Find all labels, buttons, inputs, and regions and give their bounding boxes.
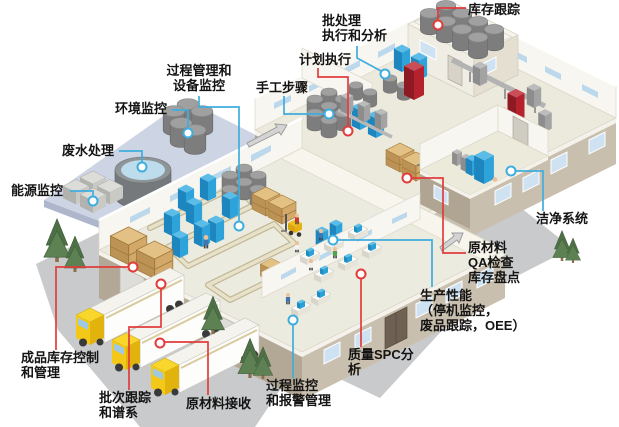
callout-manual-steps: 手工步骤 <box>256 80 308 95</box>
callout-energy: 能源监控 <box>11 183 63 198</box>
leader-quality-spc <box>357 270 366 348</box>
callout-quality-spc: 质量SPC分 析 <box>348 347 414 377</box>
callout-environment: 环境监控 <box>115 101 167 116</box>
leader-inventory-tracking <box>434 8 467 30</box>
callout-wastewater: 废水处理 <box>62 143 114 158</box>
leader-finished-goods <box>56 263 138 351</box>
leader-clean-system <box>507 167 544 212</box>
leader-raw-material-qa <box>403 174 467 254</box>
callout-production-performance: 生产性能 （停机监控， 废品跟踪，OEE） <box>420 288 525 333</box>
leader-batch-tracking <box>129 280 166 391</box>
leader-manual-steps <box>284 96 334 119</box>
leader-raw-material-receiving <box>156 339 209 396</box>
callout-clean-system: 洁净系统 <box>536 211 588 226</box>
leader-batch-execution <box>357 46 390 79</box>
leader-energy <box>70 191 98 206</box>
leader-process-equipment <box>199 96 244 231</box>
factory-diagram: 库存跟踪 批处理 执行和分析 计划执行 手工步骤 过程管理和 设备监控 环境监控… <box>0 0 619 427</box>
callout-process-equipment: 过程管理和 设备监控 <box>160 63 238 93</box>
leader-plan-execution <box>318 68 353 136</box>
leader-wastewater <box>119 151 147 172</box>
leader-process-alarm <box>289 316 298 379</box>
leader-environment <box>172 110 193 138</box>
callout-raw-material-qa: 原材料 QA检查 库存盘点 <box>468 240 520 285</box>
callout-finished-goods: 成品库存控制 和管理 <box>21 350 99 380</box>
callout-inventory-tracking: 库存跟踪 <box>468 2 520 17</box>
callout-plan-execution: 计划执行 <box>299 52 351 67</box>
leader-production-performance <box>329 236 433 288</box>
callout-raw-material-receiving: 原材料接收 <box>186 396 251 411</box>
callout-batch-tracking: 批次跟踪 和谱系 <box>99 390 151 420</box>
callout-process-alarm: 过程监控 和报警管理 <box>266 378 331 408</box>
callout-batch-execution: 批处理 执行和分析 <box>322 13 387 43</box>
